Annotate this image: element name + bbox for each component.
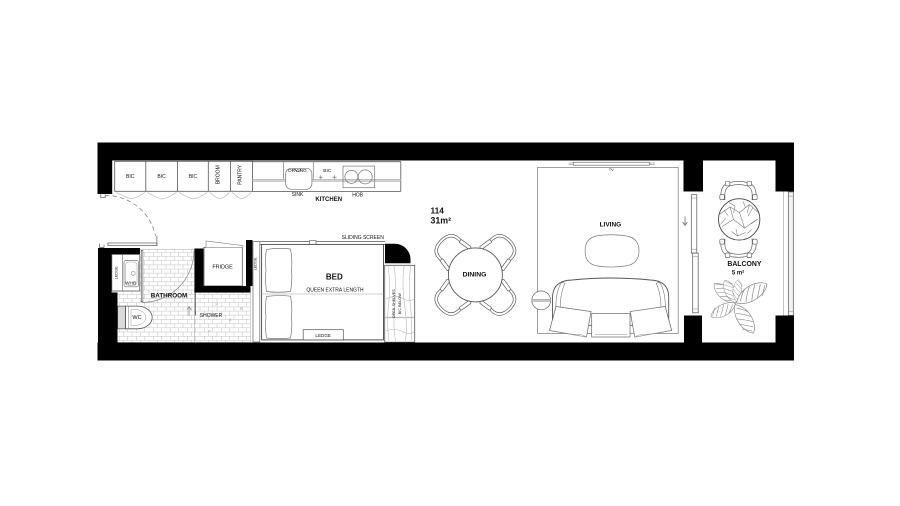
svg-text:FRIDGE: FRIDGE bbox=[212, 264, 233, 270]
svg-text:BIC: BIC bbox=[157, 174, 166, 180]
svg-text:QUEEN EXTRA LENGTH: QUEEN EXTRA LENGTH bbox=[306, 287, 364, 293]
svg-text:LEDGE: LEDGE bbox=[253, 257, 257, 270]
svg-text:LEDGE: LEDGE bbox=[315, 333, 331, 338]
svg-text:DINING: DINING bbox=[463, 272, 487, 279]
svg-text:DRYING: DRYING bbox=[288, 168, 307, 174]
svg-text:LIVING: LIVING bbox=[600, 222, 622, 229]
svg-text:BED: BED bbox=[326, 272, 343, 281]
svg-text:SINK: SINK bbox=[292, 192, 304, 198]
svg-text:BIC BELOW: BIC BELOW bbox=[398, 293, 402, 315]
svg-text:OPEN SHELVES: OPEN SHELVES bbox=[392, 289, 396, 319]
svg-text:5 m²: 5 m² bbox=[732, 269, 744, 276]
svg-text:PANTRY: PANTRY bbox=[238, 164, 244, 184]
svg-text:BATHROOM: BATHROOM bbox=[151, 292, 188, 299]
svg-text:SHOWER: SHOWER bbox=[200, 313, 223, 319]
svg-text:114: 114 bbox=[431, 206, 445, 216]
svg-text:SLIDING SCREEN: SLIDING SCREEN bbox=[342, 235, 385, 241]
svg-text:HOB: HOB bbox=[352, 193, 364, 199]
svg-text:BIC: BIC bbox=[323, 168, 332, 174]
svg-text:LEDGE: LEDGE bbox=[115, 266, 119, 279]
svg-text:BALCONY: BALCONY bbox=[727, 261, 761, 268]
svg-text:BIC: BIC bbox=[126, 174, 135, 180]
svg-text:BIC: BIC bbox=[189, 174, 198, 180]
svg-text:WC: WC bbox=[132, 315, 141, 321]
svg-text:31m²: 31m² bbox=[431, 216, 452, 226]
svg-text:KITCHEN: KITCHEN bbox=[315, 197, 342, 203]
svg-text:TV: TV bbox=[609, 167, 614, 172]
svg-text:WHB: WHB bbox=[125, 280, 136, 286]
svg-text:BROOM: BROOM bbox=[215, 165, 221, 184]
